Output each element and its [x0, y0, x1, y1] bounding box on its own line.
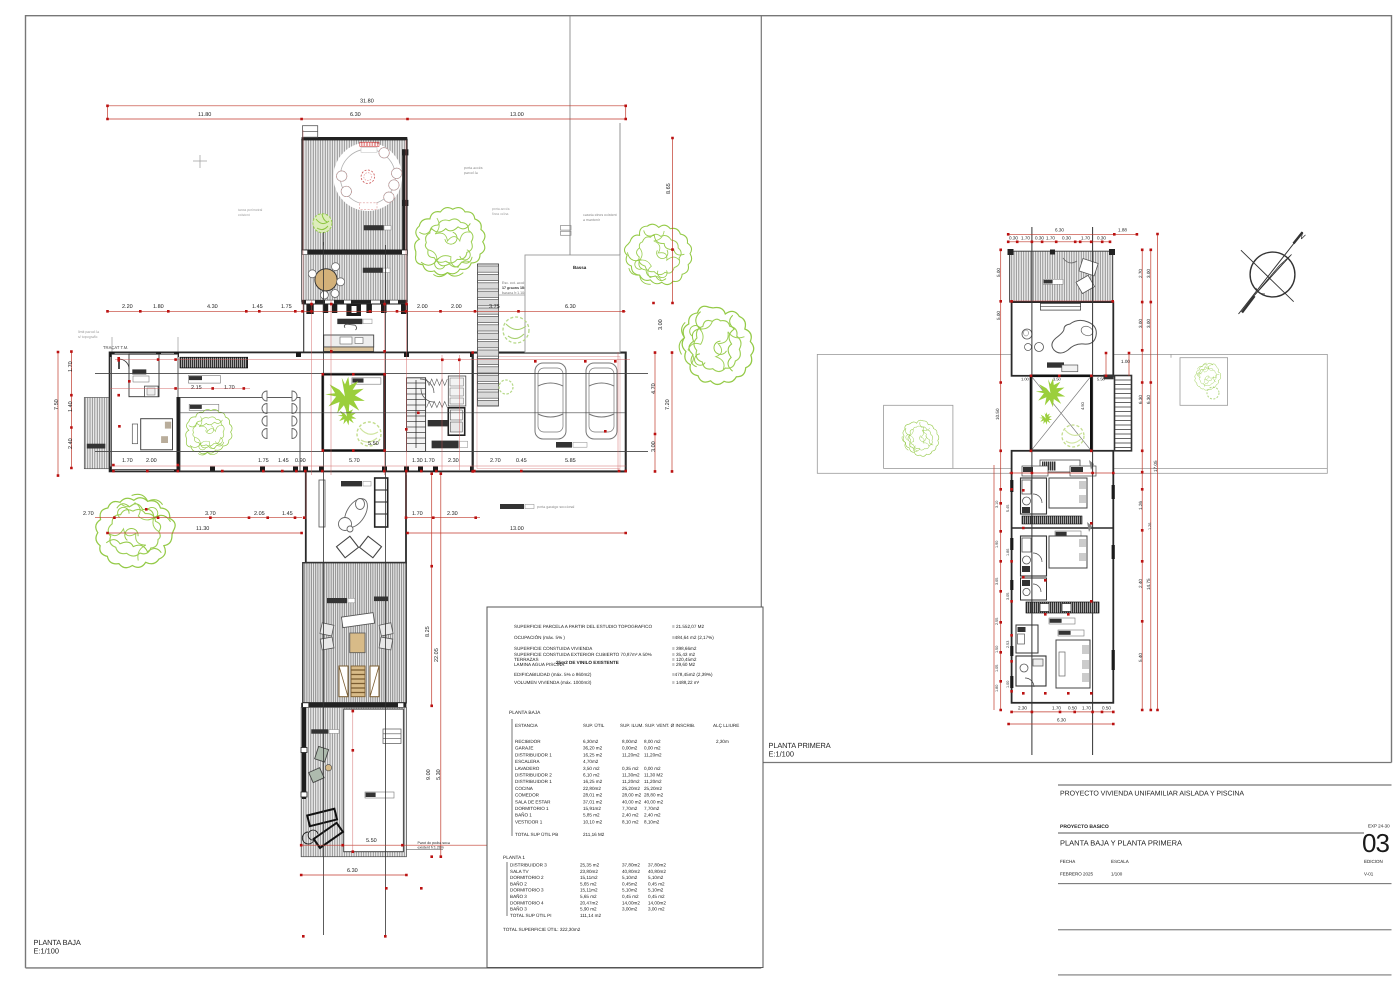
svg-text:1.40: 1.40 [68, 401, 74, 412]
svg-text:DORMITORIO 1: DORMITORIO 1 [515, 806, 549, 811]
svg-text:0.30: 0.30 [1035, 236, 1044, 241]
svg-text:1/100: 1/100 [1111, 872, 1123, 877]
svg-text:1.45: 1.45 [282, 511, 293, 517]
svg-text:DORMITORIO 2: DORMITORIO 2 [510, 875, 544, 880]
svg-text:TOTAL SUP ÚTIL PI: TOTAL SUP ÚTIL PI [510, 913, 552, 918]
svg-text:1.70: 1.70 [424, 458, 435, 464]
svg-text:porta accés: porta accés [492, 207, 510, 211]
svg-text:4.30: 4.30 [207, 304, 218, 310]
svg-text:barana h:1.10m: barana h:1.10m [502, 291, 527, 295]
svg-text:3,00 m2: 3,00 m2 [648, 907, 665, 912]
svg-text:111,14 m2: 111,14 m2 [580, 913, 601, 918]
svg-text:PROYECTO BASICO: PROYECTO BASICO [1060, 824, 1109, 830]
svg-text:1.86: 1.86 [1006, 549, 1010, 556]
svg-text:V-01: V-01 [1364, 872, 1374, 877]
svg-text:40,00 m2: 40,00 m2 [622, 799, 642, 804]
svg-text:5,85 m2: 5,85 m2 [583, 813, 600, 818]
svg-text:1.70: 1.70 [1081, 236, 1090, 241]
svg-text:37,80m2: 37,80m2 [648, 863, 666, 868]
svg-text:parcel·la: parcel·la [464, 171, 478, 175]
svg-text:PLANTA 1: PLANTA 1 [503, 855, 525, 861]
svg-text:25,20m2: 25,20m2 [622, 786, 640, 791]
svg-text:1.70: 1.70 [1021, 236, 1030, 241]
svg-text:1.50: 1.50 [995, 646, 999, 653]
svg-text:1.00: 1.00 [1006, 681, 1010, 688]
svg-text:a mantenir: a mantenir [583, 218, 601, 222]
svg-text:2.40: 2.40 [1138, 579, 1143, 588]
svg-text:2,40 m2: 2,40 m2 [622, 813, 639, 818]
svg-text:5,65 m2: 5,65 m2 [580, 881, 597, 886]
svg-text:DISTRIBUIDOR 3: DISTRIBUIDOR 3 [510, 863, 547, 868]
svg-text:03: 03 [1362, 828, 1389, 858]
svg-text:LAVADERO: LAVADERO [515, 766, 540, 771]
svg-text:3.00: 3.00 [1146, 269, 1151, 278]
svg-text:5.50: 5.50 [366, 838, 377, 844]
svg-text:25,35 m2: 25,35 m2 [580, 863, 600, 868]
svg-text:37,01 m2: 37,01 m2 [583, 799, 603, 804]
svg-text:SUP. ILUM. SUP. VENT. Ø INSC: SUP. ILUM. SUP. VENT. Ø INSCRIB. [620, 723, 695, 728]
svg-text:1.30: 1.30 [412, 458, 423, 464]
svg-text:8,00m2: 8,00m2 [622, 739, 638, 744]
svg-text:5,10m2: 5,10m2 [622, 888, 638, 893]
svg-text:2.05: 2.05 [254, 511, 265, 517]
svg-text:2.30: 2.30 [447, 511, 458, 517]
svg-text:36,20 m2: 36,20 m2 [583, 746, 603, 751]
svg-text:PLANTA BAJA: PLANTA BAJA [509, 710, 541, 716]
svg-text:= 29,60 M2: = 29,60 M2 [672, 662, 696, 667]
svg-text:2.00: 2.00 [417, 304, 428, 310]
svg-text:3.65: 3.65 [995, 578, 999, 585]
svg-text:ESCALERA: ESCALERA [515, 759, 540, 764]
svg-text:10,10 m2: 10,10 m2 [583, 819, 603, 824]
svg-text:6.30: 6.30 [565, 304, 576, 310]
svg-text:RECIBIDOR: RECIBIDOR [515, 739, 541, 744]
svg-text:6.30: 6.30 [1146, 395, 1151, 404]
svg-text:1.88: 1.88 [1118, 228, 1127, 233]
svg-text:6,10 m2: 6,10 m2 [583, 773, 600, 778]
svg-text:limit parcel·la: limit parcel·la [78, 330, 99, 334]
svg-text:17.05: 17.05 [1153, 460, 1158, 472]
svg-text:caseta eines existent: caseta eines existent [583, 213, 617, 217]
svg-text:tanca perimetral: tanca perimetral [238, 208, 263, 212]
svg-text:9.00: 9.00 [426, 769, 432, 780]
svg-text:GARAJE: GARAJE [515, 746, 533, 751]
svg-text:5,10m2: 5,10m2 [622, 875, 638, 880]
svg-text:2.70: 2.70 [83, 511, 94, 517]
svg-text:DISTRIBUIDOR 1: DISTRIBUIDOR 1 [515, 752, 552, 757]
svg-text:6.30: 6.30 [1138, 395, 1143, 404]
svg-text:OCUPACIÓN (máx. 5% ): OCUPACIÓN (máx. 5% ) [514, 635, 565, 640]
svg-text:2.20: 2.20 [122, 304, 133, 310]
svg-text:1.80: 1.80 [995, 685, 999, 692]
svg-text:1.70: 1.70 [412, 511, 423, 517]
svg-text:1.70: 1.70 [122, 458, 133, 464]
svg-text:VOLUMEN VIVIENDA (máx. 1000m3): VOLUMEN VIVIENDA (máx. 1000m3) [514, 680, 592, 685]
svg-text:=478,45m2 (2,39%): =478,45m2 (2,39%) [672, 672, 713, 677]
svg-text:5.45: 5.45 [1006, 505, 1010, 512]
svg-text:1.70: 1.70 [1082, 706, 1091, 711]
svg-text:SUPERFICIE PARCELA A PARTIR DE: SUPERFICIE PARCELA A PARTIR DEL ESTUDIO … [514, 624, 652, 629]
svg-text:0.45: 0.45 [516, 458, 527, 464]
svg-text:6.30: 6.30 [1057, 718, 1066, 723]
svg-text:1.80: 1.80 [153, 304, 164, 310]
svg-text:BAÑO 3: BAÑO 3 [510, 906, 527, 912]
svg-text:11,20m2: 11,20m2 [622, 779, 640, 784]
svg-text:5,10m2: 5,10m2 [648, 888, 664, 893]
svg-text:2.70: 2.70 [490, 458, 501, 464]
svg-text:25m2 DE VINILO EXISTENTE: 25m2 DE VINILO EXISTENTE [556, 660, 619, 665]
svg-text:14,00m2: 14,00m2 [648, 900, 666, 905]
svg-text:E:1/100: E:1/100 [34, 947, 59, 956]
svg-text:BAÑO 3: BAÑO 3 [510, 893, 527, 899]
svg-text:2.15: 2.15 [191, 385, 202, 391]
svg-text:DISTRIBUIDOR 2: DISTRIBUIDOR 2 [515, 773, 552, 778]
svg-text:40,80m2: 40,80m2 [622, 869, 640, 874]
svg-text:TOTAL SUPERFICIE ÚTIL: 322,30m: TOTAL SUPERFICIE ÚTIL: 322,30m2 [503, 927, 581, 932]
svg-text:7.20: 7.20 [665, 399, 671, 410]
svg-text:EDIFICABILIDAD (máx. 5% o 860m: EDIFICABILIDAD (máx. 5% o 860m2) [514, 672, 592, 677]
svg-text:7,70m2: 7,70m2 [644, 806, 660, 811]
svg-text:2.00: 2.00 [146, 458, 157, 464]
svg-text:11.80: 11.80 [198, 112, 211, 118]
svg-text:5.00: 5.00 [996, 311, 1001, 320]
svg-text:FECHA: FECHA [1060, 859, 1075, 864]
svg-text:2.40: 2.40 [68, 438, 74, 449]
svg-text:15,11m2: 15,11m2 [580, 875, 598, 880]
svg-text:FEBRERO 2025: FEBRERO 2025 [1060, 872, 1094, 877]
svg-text:3.50: 3.50 [1053, 377, 1062, 382]
svg-text:3.75: 3.75 [489, 304, 500, 310]
svg-text:25,20m2: 25,20m2 [644, 786, 662, 791]
svg-text:6.30: 6.30 [347, 868, 358, 874]
svg-text:TRAÇAT T.M.: TRAÇAT T.M. [103, 345, 128, 350]
svg-text:1.05: 1.05 [995, 665, 999, 672]
svg-text:2.53: 2.53 [1006, 641, 1010, 648]
svg-text:DORMITORIO 3: DORMITORIO 3 [510, 888, 544, 893]
svg-text:=484,64 m2 (2,17%): =484,64 m2 (2,17%) [672, 635, 714, 640]
svg-text:2,30m: 2,30m [716, 739, 729, 744]
svg-text:1.70: 1.70 [1052, 706, 1061, 711]
svg-text:BAÑO 2: BAÑO 2 [510, 880, 527, 886]
svg-text:0,00 m2: 0,00 m2 [644, 766, 661, 771]
svg-text:11,20m2: 11,20m2 [644, 779, 662, 784]
svg-text:TOTAL SUP ÚTIL PB: TOTAL SUP ÚTIL PB [515, 832, 558, 837]
svg-text:20,47m2: 20,47m2 [580, 900, 598, 905]
svg-text:SUP. ÚTIL: SUP. ÚTIL [583, 723, 605, 728]
svg-text:8,10 m2: 8,10 m2 [622, 819, 639, 824]
svg-text:1.00: 1.00 [1021, 377, 1030, 382]
svg-text:3.00: 3.00 [1146, 319, 1151, 328]
svg-text:8,00 m2: 8,00 m2 [644, 739, 661, 744]
svg-text:22.05: 22.05 [434, 648, 440, 662]
svg-text:11.30: 11.30 [196, 526, 209, 532]
svg-text:1.70: 1.70 [68, 361, 74, 372]
svg-text:3.10: 3.10 [995, 501, 999, 508]
svg-text:0.90: 0.90 [295, 458, 306, 464]
svg-text:porta accés: porta accés [464, 166, 483, 170]
svg-text:6.30: 6.30 [350, 112, 361, 118]
svg-text:= 398,66m2: = 398,66m2 [672, 646, 697, 651]
svg-text:7,70m2: 7,70m2 [622, 806, 638, 811]
svg-text:4,70m2: 4,70m2 [583, 759, 599, 764]
svg-text:5.40: 5.40 [1138, 653, 1143, 662]
svg-text:SUPERFICIE CONSTUIDA VIVIENDA: SUPERFICIE CONSTUIDA VIVIENDA [514, 646, 593, 651]
svg-text:2.30: 2.30 [1018, 706, 1027, 711]
svg-text:1.45: 1.45 [278, 458, 289, 464]
svg-text:Bassa: Bassa [573, 265, 587, 270]
svg-text:7.50: 7.50 [54, 399, 60, 410]
svg-text:porta garatge seccional: porta garatge seccional [537, 505, 575, 509]
svg-text:1.00: 1.00 [1121, 359, 1130, 364]
svg-text:4.70: 4.70 [651, 383, 657, 394]
svg-text:6,30m2: 6,30m2 [583, 739, 599, 744]
svg-text:existent h:1.20m: existent h:1.20m [418, 846, 444, 850]
svg-text:COMEDOR: COMEDOR [515, 793, 540, 798]
svg-text:11,20m2: 11,20m2 [622, 752, 640, 757]
svg-text:5,65 m2: 5,65 m2 [580, 894, 597, 899]
svg-text:8.25: 8.25 [425, 626, 431, 637]
svg-text:23,80m2: 23,80m2 [580, 869, 598, 874]
svg-text:0,45 m2: 0,45 m2 [622, 894, 639, 899]
svg-text:1.70: 1.70 [1046, 236, 1055, 241]
svg-text:3.05: 3.05 [1006, 593, 1010, 600]
svg-text:5,10m2: 5,10m2 [648, 875, 664, 880]
svg-text:E:1/100: E:1/100 [769, 750, 794, 759]
svg-text:4.50: 4.50 [1080, 401, 1085, 410]
svg-text:COCINA: COCINA [515, 786, 534, 791]
svg-text:3.70: 3.70 [205, 511, 216, 517]
svg-text:existent: existent [238, 213, 250, 217]
svg-text:1.75: 1.75 [258, 458, 269, 464]
svg-text:28,01 m2: 28,01 m2 [583, 793, 603, 798]
svg-text:10.50: 10.50 [995, 408, 1000, 420]
svg-text:11,30 M2: 11,30 M2 [644, 773, 663, 778]
svg-text:SALA DE ESTAR: SALA DE ESTAR [515, 799, 551, 804]
svg-text:2.55: 2.55 [995, 618, 999, 625]
svg-text:Paret de pedra seca: Paret de pedra seca [418, 841, 450, 845]
svg-text:EDICION: EDICION [1364, 859, 1383, 864]
svg-text:0.50: 0.50 [1068, 706, 1077, 711]
svg-text:28,00 m2: 28,00 m2 [622, 793, 642, 798]
svg-text:SALA TV: SALA TV [510, 869, 529, 874]
svg-text:5.85: 5.85 [565, 458, 576, 464]
svg-text:6.30: 6.30 [1055, 228, 1064, 233]
svg-text:0,35 m2: 0,35 m2 [622, 766, 639, 771]
svg-text:1.90: 1.90 [995, 541, 999, 548]
svg-text:11,30m2: 11,30m2 [622, 773, 640, 778]
svg-text:VESTIDOR 1: VESTIDOR 1 [515, 819, 543, 824]
svg-text:5.70: 5.70 [349, 458, 360, 464]
svg-text:1.70: 1.70 [224, 385, 235, 391]
svg-text:ALÇ LLIURE: ALÇ LLIURE [713, 723, 739, 728]
svg-text:0.50: 0.50 [1102, 706, 1111, 711]
svg-text:2,40 m2: 2,40 m2 [644, 813, 661, 818]
svg-text:211,16 M2: 211,16 M2 [583, 832, 605, 837]
svg-text:= 21.552,07 M2: = 21.552,07 M2 [672, 624, 704, 629]
svg-text:0.30: 0.30 [1097, 236, 1106, 241]
svg-text:5.30: 5.30 [436, 769, 442, 780]
svg-text:0,45 m2: 0,45 m2 [648, 881, 665, 886]
svg-text:14,00m2: 14,00m2 [622, 900, 640, 905]
svg-text:31.80: 31.80 [360, 99, 374, 105]
svg-text:= 1488,22 m³: = 1488,22 m³ [672, 680, 700, 685]
svg-text:PLANTA BAJA Y PLANTA PRIMERA: PLANTA BAJA Y PLANTA PRIMERA [1060, 839, 1182, 848]
svg-text:2.00: 2.00 [451, 304, 462, 310]
svg-text:8,10m2: 8,10m2 [644, 819, 660, 824]
svg-text:1.26: 1.26 [1138, 501, 1143, 510]
svg-text:16,25 m2: 16,25 m2 [583, 752, 603, 757]
svg-text:1.45: 1.45 [252, 304, 263, 310]
svg-text:0.30: 0.30 [1009, 236, 1018, 241]
svg-text:5,90 m2: 5,90 m2 [580, 907, 597, 912]
svg-text:14.75: 14.75 [1146, 578, 1151, 590]
svg-text:13.00: 13.00 [510, 112, 524, 118]
svg-text:DISTRIBUIDOR 1: DISTRIBUIDOR 1 [515, 779, 552, 784]
svg-text:PROYECTO VIVIENDA UNIFAMILIAR: PROYECTO VIVIENDA UNIFAMILIAR AISLADA Y … [1060, 791, 1244, 798]
svg-text:3.00: 3.00 [658, 319, 664, 330]
svg-text:0.30: 0.30 [1062, 236, 1071, 241]
svg-text:5.00: 5.00 [996, 268, 1001, 277]
svg-text:ESTANCIA: ESTANCIA [515, 723, 539, 728]
svg-text:finca veïna: finca veïna [492, 212, 509, 216]
svg-text:0,45m2: 0,45m2 [622, 881, 638, 886]
svg-text:37,80m2: 37,80m2 [622, 863, 640, 868]
svg-text:DORMITORIO 4: DORMITORIO 4 [510, 900, 544, 905]
svg-text:2.70: 2.70 [1138, 269, 1143, 278]
svg-text:1.26: 1.26 [1148, 523, 1152, 530]
svg-text:s/ topografic: s/ topografic [78, 335, 98, 339]
svg-text:5.50: 5.50 [368, 441, 379, 447]
svg-text:BAÑO 1: BAÑO 1 [515, 812, 532, 818]
svg-text:3,00m2: 3,00m2 [622, 907, 638, 912]
svg-text:3.00: 3.00 [1138, 319, 1143, 328]
svg-text:28,80 m2: 28,80 m2 [644, 793, 664, 798]
svg-text:3,50 m2: 3,50 m2 [583, 766, 600, 771]
svg-text:13.00: 13.00 [510, 526, 524, 532]
svg-text:40,00 m2: 40,00 m2 [644, 799, 664, 804]
svg-text:0,00m2: 0,00m2 [622, 746, 638, 751]
svg-text:8.65: 8.65 [666, 183, 672, 194]
svg-text:1.75: 1.75 [281, 304, 292, 310]
svg-text:0,00 m2: 0,00 m2 [644, 746, 661, 751]
svg-text:2.30: 2.30 [448, 458, 459, 464]
svg-text:40,80m2: 40,80m2 [648, 869, 666, 874]
svg-text:ESCALA: ESCALA [1111, 859, 1129, 864]
svg-text:3.00: 3.00 [651, 441, 657, 452]
svg-text:0,45 m2: 0,45 m2 [648, 894, 665, 899]
svg-text:15,91m2: 15,91m2 [583, 806, 601, 811]
svg-text:15,11m2: 15,11m2 [580, 888, 598, 893]
svg-text:11,20m2: 11,20m2 [644, 752, 662, 757]
svg-text:22,80m2: 22,80m2 [583, 786, 601, 791]
svg-text:16,25 m2: 16,25 m2 [583, 779, 603, 784]
